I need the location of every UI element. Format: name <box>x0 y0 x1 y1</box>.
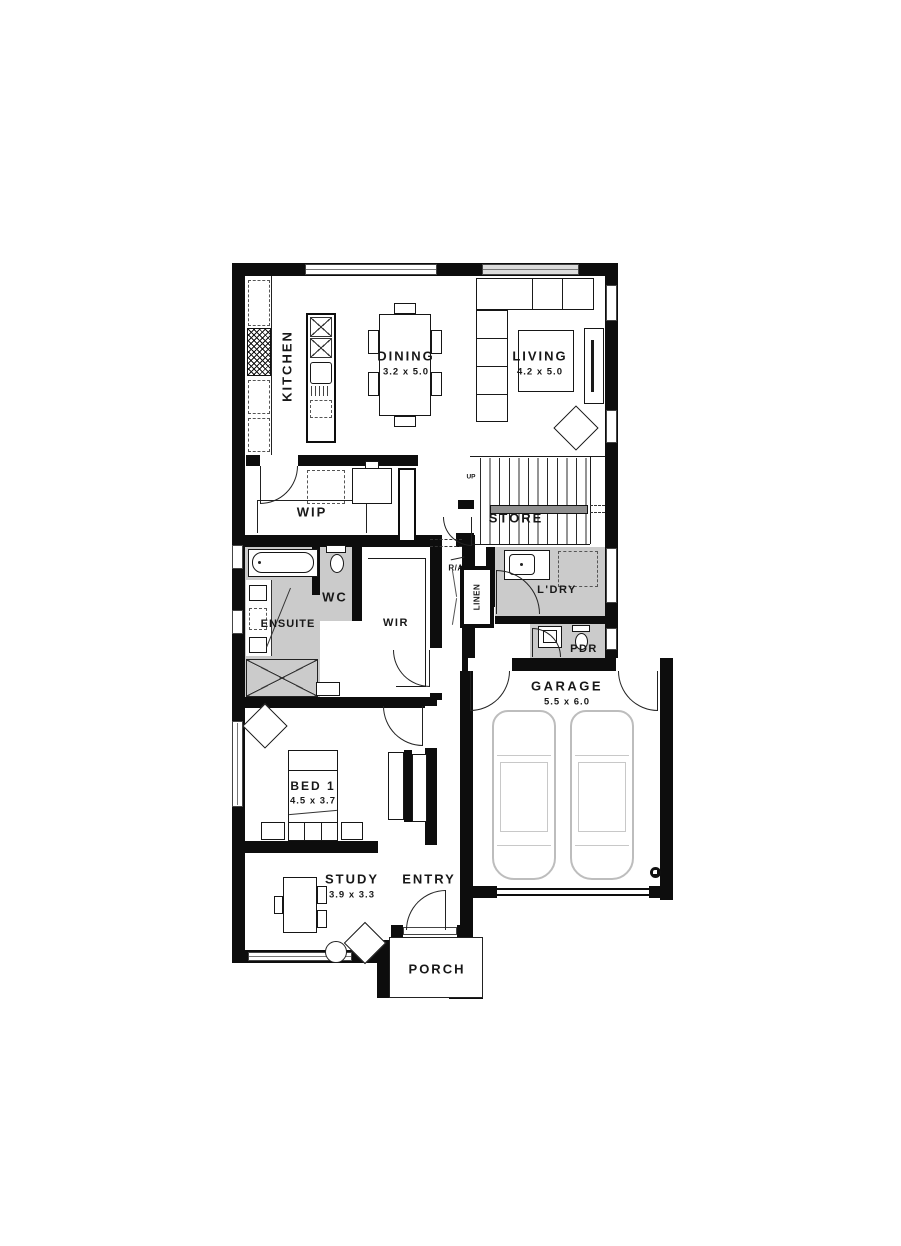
bed1-bed-pillows <box>288 750 338 771</box>
laundry-appliance-space <box>558 551 598 587</box>
wip-tall-cabinet <box>398 468 416 542</box>
bed1-door-leaf <box>422 706 423 746</box>
wall-garage-bottom-left <box>473 886 497 898</box>
wip-appliance-handle <box>365 461 379 469</box>
opening-wir <box>430 648 442 693</box>
bed1-bed-foot <box>288 822 338 841</box>
dining-dims: 3.2 x 5.0 <box>383 367 429 378</box>
linen-label: LINEN <box>473 584 482 611</box>
entry-door-arc <box>406 890 446 930</box>
garage-entry-door-left-leaf <box>470 671 471 711</box>
ensuite-basin-1 <box>249 585 267 601</box>
garage-door-panel <box>497 888 649 896</box>
study-desk <box>283 877 317 933</box>
linen-bifold-2 <box>452 598 457 625</box>
window-powder <box>606 628 617 650</box>
dining-label: DINING <box>377 349 435 364</box>
powder-door-leaf <box>532 628 533 657</box>
bed1-dims: 4.5 x 3.7 <box>290 796 336 807</box>
wc-label: WC <box>322 590 348 605</box>
car-1-rear <box>497 845 551 846</box>
wir-door-leaf <box>429 650 430 687</box>
car-2-roof <box>578 762 626 832</box>
window-living-top-mullion <box>483 269 578 270</box>
kitchen-cooktop-hatch <box>247 328 271 376</box>
wip-appliance <box>352 468 392 504</box>
store-door-arc <box>443 517 472 546</box>
wip-door-arc <box>260 466 298 504</box>
island-cabinet-dashed <box>310 400 332 418</box>
bed1-chair <box>242 703 287 748</box>
store-label: STORE <box>489 511 544 526</box>
stair-dash-right-2 <box>590 512 605 514</box>
window-living-right-1 <box>606 285 617 321</box>
sofa-top-divider-1 <box>532 279 533 309</box>
garage-dims: 5.5 x 6.0 <box>544 697 590 708</box>
ensuite-label: ENSUITE <box>261 618 316 630</box>
laundry-door-leaf <box>496 570 497 614</box>
study-round-chair <box>325 941 347 963</box>
opening-bed1 <box>425 706 437 748</box>
tv-unit <box>584 328 604 404</box>
stair-right-line <box>590 457 591 544</box>
study-chair-1 <box>317 886 327 904</box>
wc-toilet-bowl <box>330 554 344 573</box>
wall-linen-bottom <box>462 626 475 658</box>
wip-door-leaf <box>260 466 261 504</box>
powder-toilet-tank <box>572 625 590 632</box>
bed1-side-table-left <box>261 822 285 840</box>
garage-service-symbol-mark <box>653 870 657 874</box>
wc-toilet-tank <box>326 545 346 553</box>
hall-cupboard <box>412 754 427 822</box>
kitchen-overhead-cupboard-3 <box>248 418 270 452</box>
dining-chair-top <box>394 303 416 314</box>
garage-entry-door-right-arc <box>618 671 658 711</box>
ensuite-cabinet <box>316 682 340 696</box>
wall-stair-stub-upper <box>458 500 474 509</box>
ensuite-bath-inner <box>252 552 314 573</box>
sofa-top-divider-2 <box>562 279 563 309</box>
window-ensuite-1 <box>232 545 243 569</box>
dining-table <box>379 314 431 416</box>
window-ensuite-2 <box>232 610 243 634</box>
dining-chair-right-2 <box>431 372 442 396</box>
wip-label: WIP <box>297 505 328 520</box>
island-burner-2 <box>310 338 332 358</box>
stair-treads <box>480 458 590 544</box>
ensuite-bath-tap <box>258 561 261 564</box>
dining-chair-left-2 <box>368 372 379 396</box>
living-side-table <box>553 405 598 450</box>
sofa-top <box>476 278 594 310</box>
stair-dash-right-1 <box>590 505 605 507</box>
wall-wip-top-stub <box>246 455 260 466</box>
window-bed1-mullion <box>237 723 238 805</box>
laundry-tap <box>520 563 523 566</box>
wall-garage-right <box>660 658 673 900</box>
kitchen-overhead-cupboard-1 <box>248 280 270 326</box>
study-chair-2 <box>317 910 327 928</box>
stair-bottom-line <box>472 544 590 545</box>
porch-label: PORCH <box>409 962 466 977</box>
living-dims: 4.2 x 5.0 <box>517 367 563 378</box>
island-sink-bowl <box>310 362 332 384</box>
wc-floor <box>320 541 354 621</box>
car-2-rear <box>575 845 629 846</box>
wir-label: WIR <box>383 617 409 629</box>
car-1-windshield <box>497 755 551 756</box>
hall-dash-2 <box>430 546 462 548</box>
bed1-foot-divider-2 <box>321 823 322 840</box>
study-label: STUDY <box>325 872 379 887</box>
car-2-windshield <box>575 755 629 756</box>
sofa-left-divider-1 <box>477 338 507 339</box>
wir-shelf-top <box>368 558 426 559</box>
island-burner-1 <box>310 317 332 337</box>
powder-label: PDR <box>570 643 598 655</box>
window-kitchen-dining-mullion <box>306 269 436 270</box>
bed1-door-arc <box>383 706 423 746</box>
bed1-side-table-right <box>341 822 363 840</box>
wall-robe-divider <box>404 750 412 822</box>
laundry-label: L'DRY <box>537 584 577 596</box>
window-laundry <box>606 548 617 603</box>
stair-up-label: UP <box>466 474 475 481</box>
opening-garage-right <box>616 658 660 671</box>
garage-label: GARAGE <box>531 679 603 694</box>
garage-entry-door-left-arc <box>470 671 510 711</box>
tv-screen <box>591 340 594 392</box>
garage-entry-door-right-leaf <box>657 671 658 711</box>
wall-laundry-bottom <box>495 616 605 624</box>
study-chair-3 <box>274 896 283 914</box>
wall-entry-front-left <box>391 925 403 937</box>
window-living-right-2 <box>606 410 617 443</box>
bed1-label: BED 1 <box>290 779 335 793</box>
wall-right-upper <box>605 263 618 666</box>
entry-door-leaf <box>445 890 446 930</box>
wall-bed1-bottom <box>232 841 378 853</box>
wall-garage-bottom-right <box>649 886 673 898</box>
kitchen-overhead-cupboard-2 <box>248 380 270 414</box>
wall-wc-right <box>352 535 362 621</box>
ensuite-basin-2 <box>249 637 267 653</box>
wall-wip-top <box>298 455 418 466</box>
sofa-left-divider-2 <box>477 366 507 367</box>
hall-dash-1 <box>430 539 462 541</box>
opening-garage-left <box>468 658 512 671</box>
living-label: LIVING <box>512 349 567 364</box>
linen-bifold-1 <box>452 570 457 597</box>
car-1-roof <box>500 762 548 832</box>
dining-chair-bottom <box>394 416 416 427</box>
store-door-leaf <box>471 517 472 546</box>
wip-fridge-space <box>307 470 345 504</box>
ensuite-shower <box>246 659 318 697</box>
stair-top-line <box>470 456 605 457</box>
floor-plan: KITCHEN DINING 3.2 x 5.0 LIVING 4.2 x 5.… <box>0 0 901 1246</box>
study-dims: 3.9 x 3.3 <box>329 890 375 901</box>
bed1-foot-divider-1 <box>304 823 305 840</box>
entry-label: ENTRY <box>402 872 456 887</box>
bed1-robe <box>388 752 404 820</box>
sofa-left-divider-3 <box>477 394 507 395</box>
wall-entry-front-right <box>457 925 473 937</box>
island-sink-drainer <box>311 386 331 396</box>
opening-wip <box>260 455 298 466</box>
wir-door-arc <box>393 650 430 687</box>
kitchen-label: KITCHEN <box>280 330 295 402</box>
